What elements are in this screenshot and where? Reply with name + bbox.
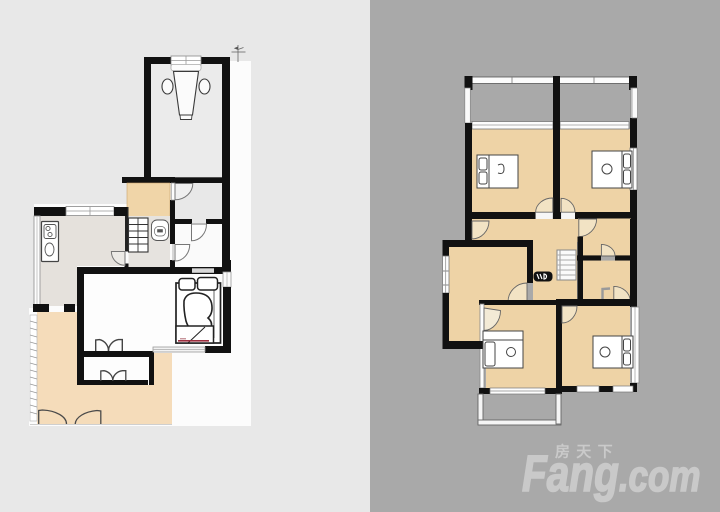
svg-text:Fang.com: Fang.com bbox=[522, 445, 700, 503]
